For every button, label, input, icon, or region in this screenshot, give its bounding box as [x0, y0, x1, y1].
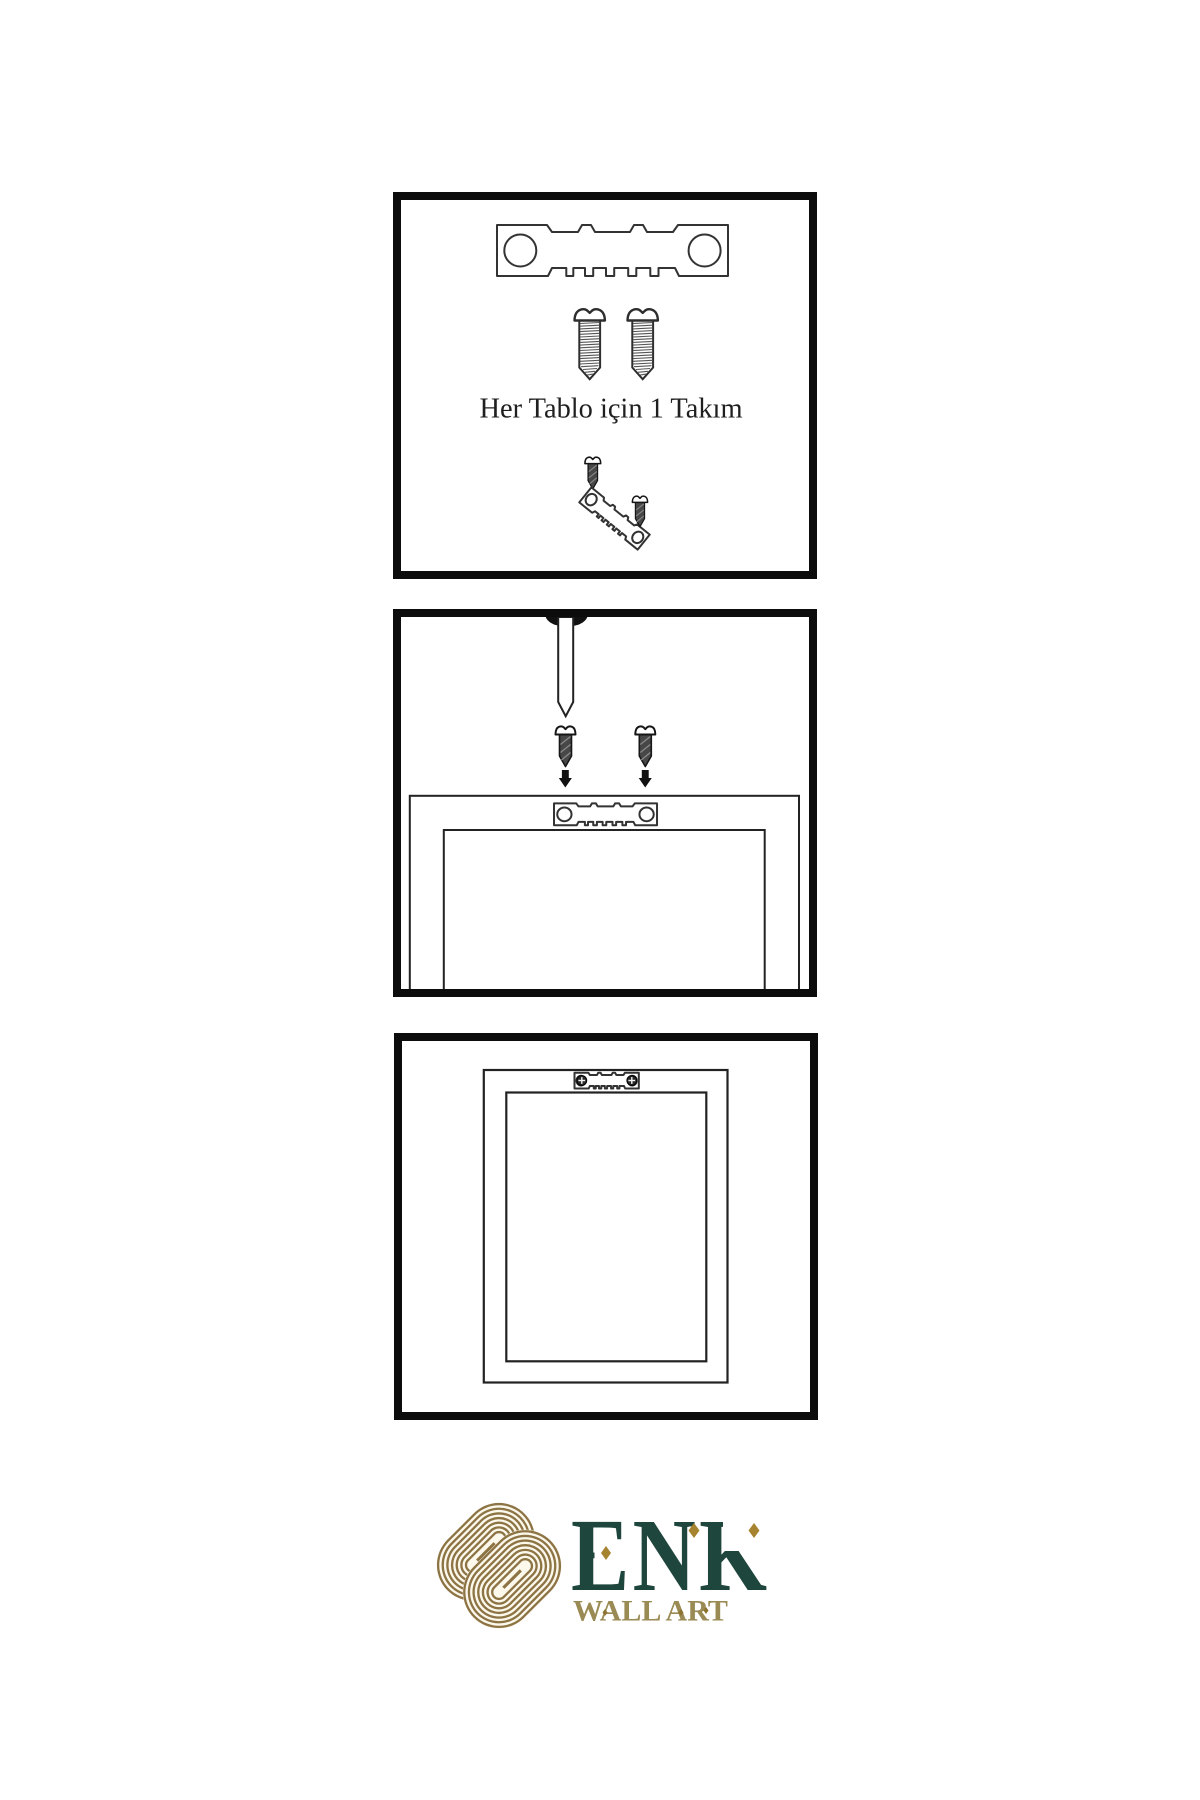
svg-text:Her Tablo için 1 Takım: Her Tablo için 1 Takım — [479, 394, 742, 425]
